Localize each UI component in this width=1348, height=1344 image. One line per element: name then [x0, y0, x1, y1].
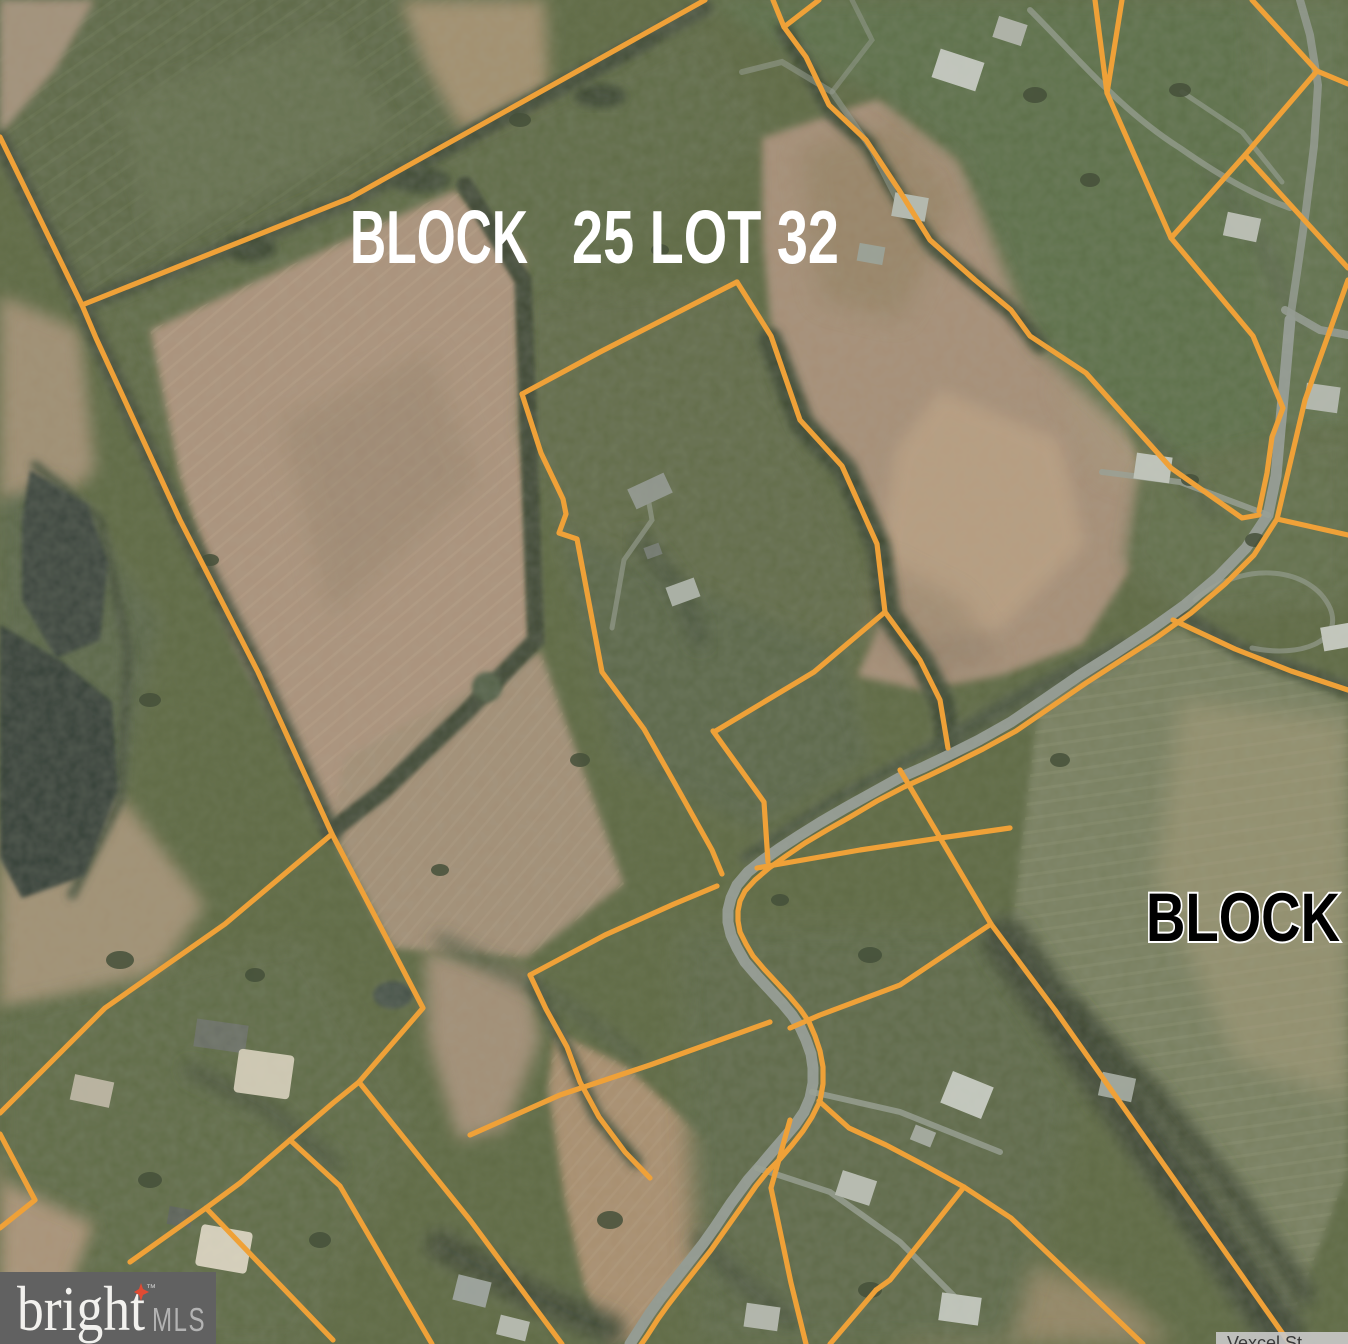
- svg-text:BLOCK: BLOCK: [350, 195, 528, 279]
- svg-text:™: ™: [146, 1283, 156, 1294]
- svg-text:MLS: MLS: [152, 1301, 206, 1338]
- svg-text:BLOCK: BLOCK: [1146, 879, 1340, 956]
- svg-text:25 LOT 32: 25 LOT 32: [572, 195, 839, 279]
- svg-text:Vexcel St: Vexcel St: [1227, 1333, 1302, 1344]
- svg-text:bright: bright: [17, 1273, 145, 1344]
